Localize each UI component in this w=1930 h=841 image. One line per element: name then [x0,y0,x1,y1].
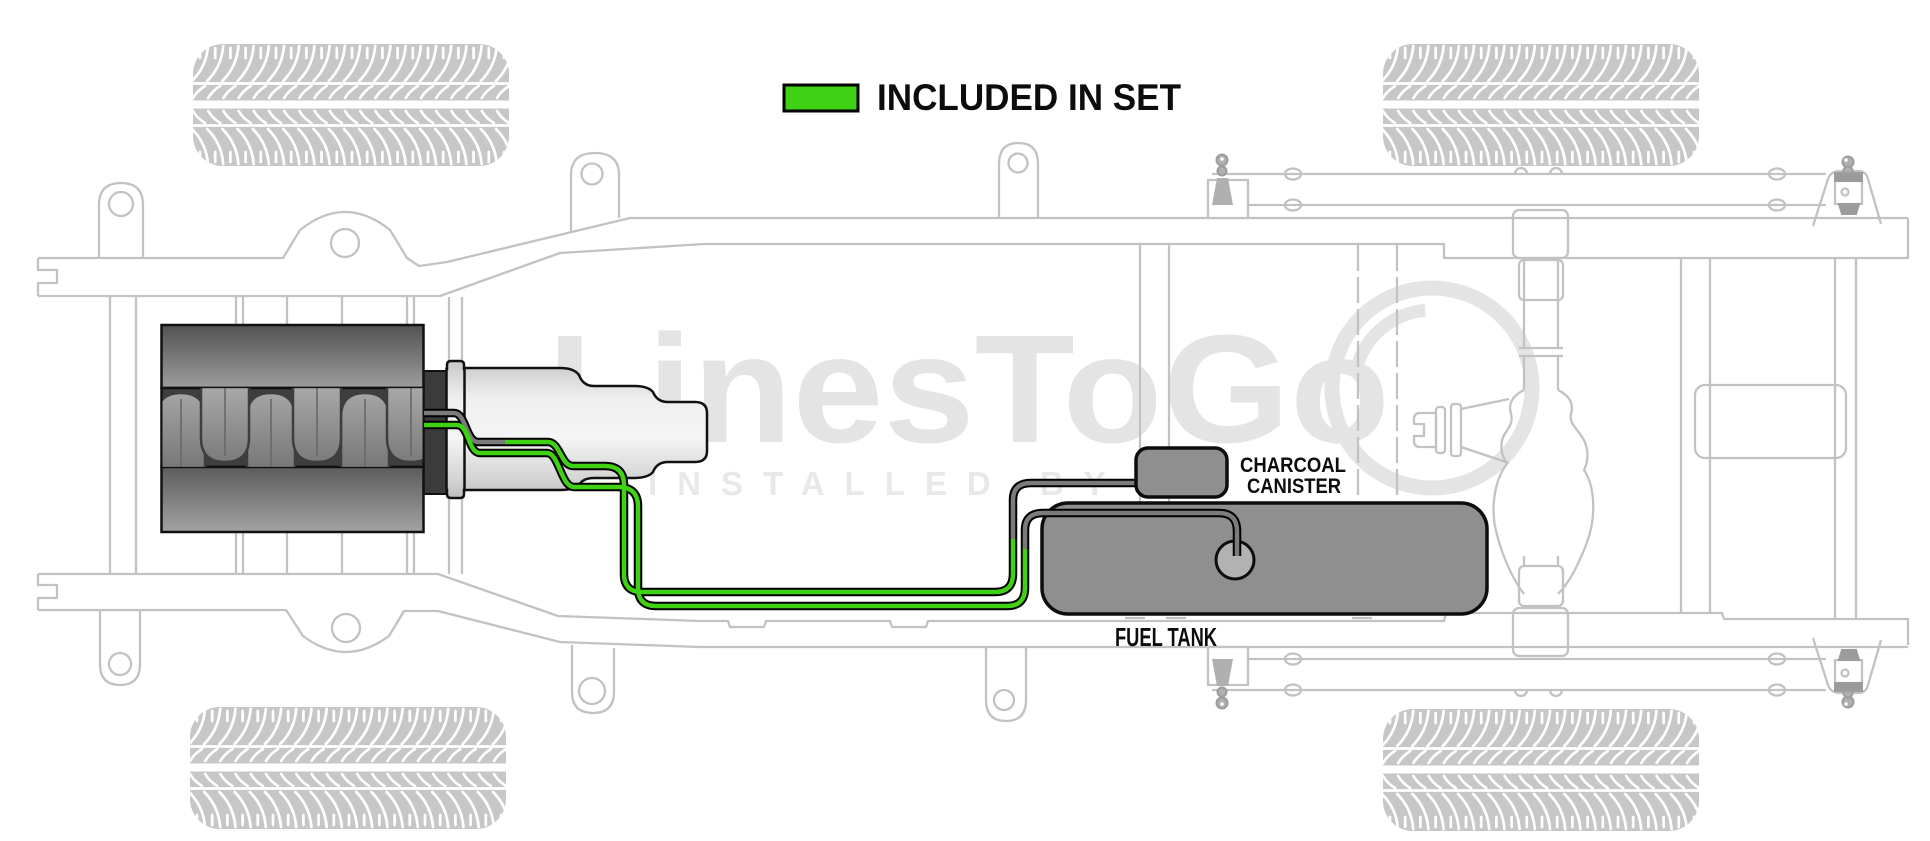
svg-text:FUEL TANK: FUEL TANK [1115,622,1217,652]
svg-text:INCLUDED IN SET: INCLUDED IN SET [877,77,1181,118]
svg-text:CANISTER: CANISTER [1247,474,1341,498]
